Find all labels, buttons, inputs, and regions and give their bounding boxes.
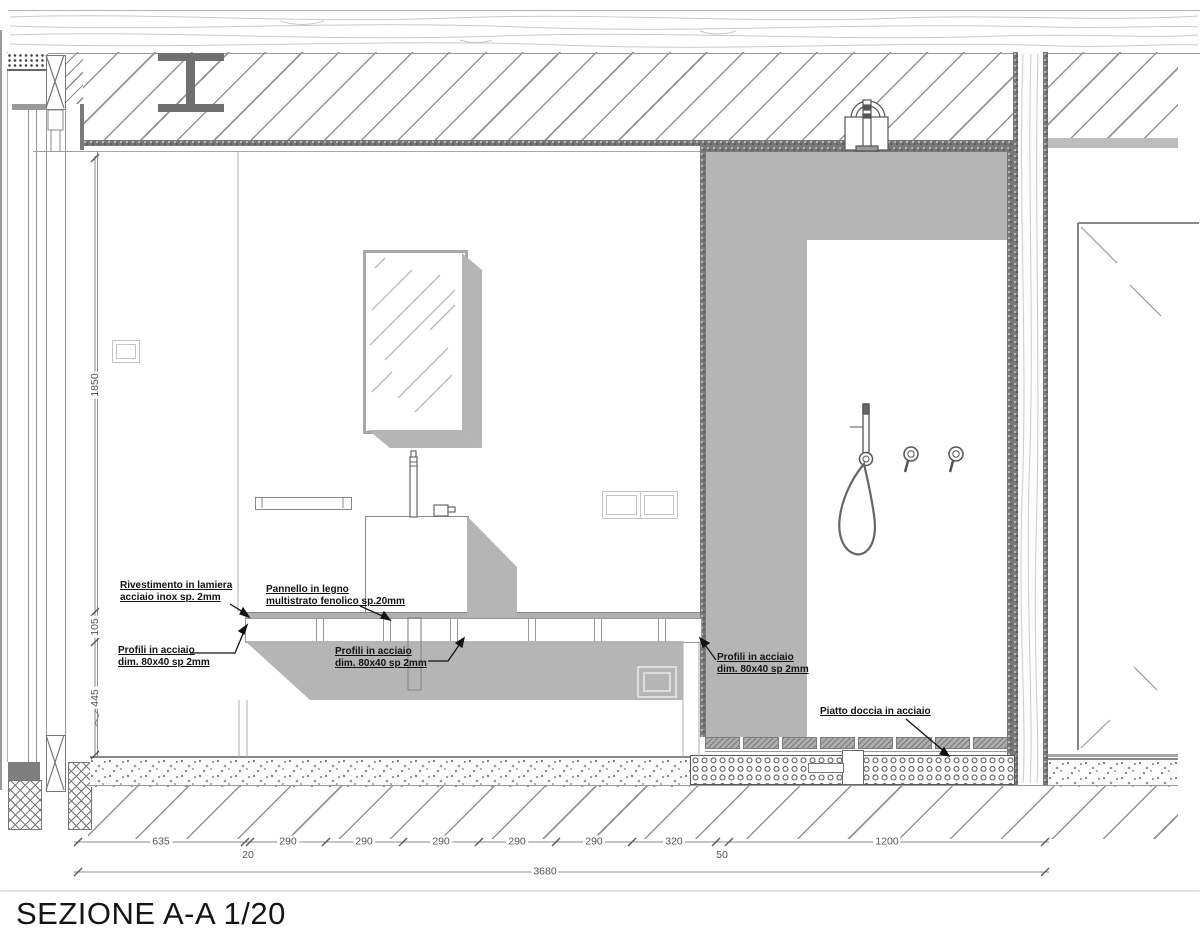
mirror-reflections — [370, 258, 455, 412]
dim-290: 290 — [353, 835, 375, 847]
shower-knob — [904, 447, 918, 472]
wall-socket — [112, 340, 140, 363]
dim-1200: 1200 — [873, 835, 900, 847]
dim-290: 290 — [506, 835, 528, 847]
floor-drain — [842, 750, 864, 785]
shower-knob — [949, 447, 963, 472]
shower-rail — [850, 404, 873, 466]
linework — [0, 0, 1200, 938]
annotation-line: dim. 80x40 sp 2mm — [717, 664, 809, 676]
wall-socket — [637, 666, 677, 698]
dimension-ticks — [74, 154, 1049, 876]
dim-320: 320 — [663, 835, 685, 847]
wall-socket — [602, 491, 641, 519]
annotation-line: Profili in acciaio — [717, 652, 809, 664]
dimension-lines — [74, 156, 1049, 872]
annotation-piatto-doccia: Piatto doccia in acciaio — [820, 706, 931, 718]
dim-290: 290 — [277, 835, 299, 847]
dim-290: 290 — [583, 835, 605, 847]
sheet-divider — [0, 890, 1200, 892]
shelf-endcaps — [262, 497, 343, 508]
steel-beam — [158, 53, 224, 112]
annotation-line: Profili in acciaio — [118, 645, 210, 657]
dim-635: 635 — [150, 835, 172, 847]
panel-reflections — [1081, 227, 1161, 748]
dim-105: 105 — [89, 616, 101, 638]
dim-20: 20 — [242, 849, 254, 861]
annotation-line: multistrato fenolico sp.20mm — [266, 596, 405, 608]
section-drawing: Rivestimento in lamiera acciaio inox sp.… — [0, 0, 1200, 938]
dim-1850: 1850 — [89, 371, 101, 398]
annotation-line: acciaio inox sp. 2mm — [120, 592, 232, 604]
timber-x-bracing — [46, 55, 64, 790]
annotation-line: dim. 80x40 sp 2mm — [335, 658, 427, 670]
annotation-line: dim. 80x40 sp 2mm — [118, 657, 210, 669]
dim-total-3680: 3680 — [531, 865, 558, 877]
drain-feed-pipe — [808, 763, 844, 773]
shower-handset — [839, 464, 875, 554]
annotation-profili-left: Profili in acciaio dim. 80x40 sp 2mm — [118, 645, 210, 668]
basin-tap — [410, 451, 455, 517]
dim-290: 290 — [430, 835, 452, 847]
wood-grain-top — [10, 16, 1198, 48]
annotation-line: Pannello in legno — [266, 584, 405, 596]
drawing-title: SEZIONE A-A 1/20 — [16, 896, 286, 932]
dim-445: 445 — [89, 687, 101, 709]
dim-50: 50 — [716, 849, 728, 861]
counter-shadow — [245, 641, 683, 700]
basin-shadow — [467, 516, 517, 617]
ceiling-shower-arm — [845, 100, 888, 151]
wall-socket — [640, 491, 678, 519]
annotation-rivestimento: Rivestimento in lamiera acciaio inox sp.… — [120, 580, 232, 603]
annotation-line: Rivestimento in lamiera — [120, 580, 232, 592]
annotation-line: Piatto doccia in acciaio — [820, 706, 931, 718]
annotation-profili-right: Profili in acciaio dim. 80x40 sp 2mm — [717, 652, 809, 675]
annotation-line: Profili in acciaio — [335, 646, 427, 658]
wood-grain-post — [1021, 54, 1038, 783]
mirror-shadow — [368, 253, 482, 448]
annotation-profili-mid: Profili in acciaio dim. 80x40 sp 2mm — [335, 646, 427, 669]
annotation-pannello: Pannello in legno multistrato fenolico s… — [266, 584, 405, 607]
